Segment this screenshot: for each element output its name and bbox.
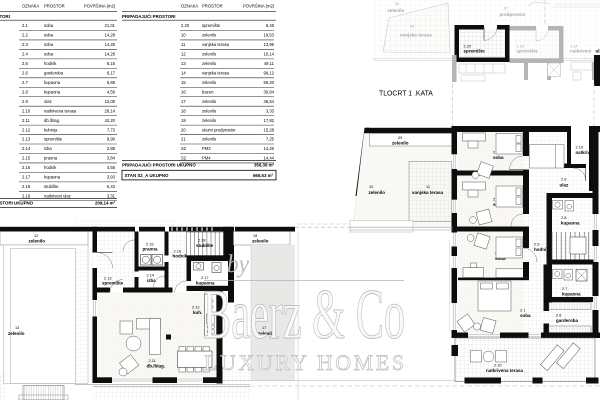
- svg-text:6,48: 6,48: [266, 23, 275, 28]
- svg-text:18: 18: [181, 108, 186, 113]
- svg-text:2.5: 2.5: [22, 61, 28, 66]
- svg-text:TLOCRT 1 .KATA: TLOCRT 1 .KATA: [379, 91, 433, 98]
- svg-text:20: 20: [181, 127, 186, 132]
- svg-text:36,54: 36,54: [264, 99, 275, 104]
- svg-text:vanjska terasa: vanjska terasa: [202, 42, 230, 47]
- svg-text:2.5: 2.5: [534, 242, 539, 247]
- svg-text:hodnik: hodnik: [173, 254, 188, 259]
- svg-text:18: 18: [253, 234, 257, 238]
- svg-text:STAN S2_A UKUPNO: STAN S2_A UKUPNO: [125, 173, 169, 178]
- svg-text:14,28: 14,28: [105, 33, 116, 38]
- svg-text:2.11: 2.11: [149, 358, 156, 363]
- svg-text:05: 05: [395, 2, 399, 6]
- svg-text:5,43: 5,43: [107, 184, 116, 189]
- svg-text:4,58: 4,58: [107, 89, 116, 94]
- svg-text:14,28: 14,28: [105, 52, 116, 57]
- svg-text:14,44: 14,44: [264, 156, 275, 161]
- svg-text:kuh.: kuh.: [193, 310, 202, 315]
- svg-text:by: by: [227, 251, 250, 278]
- svg-text:21: 21: [181, 137, 186, 142]
- svg-text:stubište: stubište: [196, 243, 214, 248]
- svg-text:15,28: 15,28: [264, 127, 275, 132]
- svg-text:spremište: spremište: [102, 281, 124, 286]
- svg-text:2.2: 2.2: [22, 33, 28, 38]
- svg-text:2.18: 2.18: [22, 184, 31, 189]
- svg-text:soba: soba: [44, 52, 54, 57]
- svg-text:praona: praona: [143, 247, 159, 252]
- svg-text:6,17: 6,17: [107, 71, 116, 76]
- svg-text:zelenilo: zelenilo: [252, 239, 269, 244]
- svg-text:PM3: PM3: [202, 146, 211, 151]
- svg-text:2.13: 2.13: [104, 275, 112, 280]
- svg-text:21,01: 21,01: [105, 23, 116, 28]
- svg-text:2.6: 2.6: [22, 71, 28, 76]
- svg-text:vanjska terasa: vanjska terasa: [412, 190, 444, 195]
- svg-text:13: 13: [181, 61, 186, 66]
- svg-text:7,73: 7,73: [107, 127, 116, 132]
- svg-text:2.19: 2.19: [22, 193, 31, 198]
- svg-text:28,14: 28,14: [105, 108, 116, 113]
- svg-text:garderoba: garderoba: [44, 71, 64, 76]
- svg-text:2.18: 2.18: [198, 238, 206, 243]
- svg-text:10,14: 10,14: [264, 52, 275, 57]
- svg-text:09: 09: [398, 136, 402, 140]
- svg-text:ulaz: ulaz: [560, 183, 570, 188]
- svg-text:10: 10: [181, 33, 186, 38]
- svg-text:OZNAKA: OZNAKA: [181, 4, 198, 9]
- svg-text:14,28: 14,28: [105, 42, 116, 47]
- svg-text:3,31: 3,31: [107, 193, 116, 198]
- svg-text:2.3: 2.3: [22, 42, 28, 47]
- svg-text:zelenilo: zelenilo: [202, 33, 217, 38]
- svg-text:2.7: 2.7: [22, 80, 28, 85]
- svg-text:zelenilo: zelenilo: [202, 52, 217, 57]
- svg-text:9,90: 9,90: [107, 137, 116, 142]
- svg-text:2.4: 2.4: [22, 52, 28, 57]
- svg-text:stubište: stubište: [44, 184, 59, 189]
- svg-text:59,20: 59,20: [264, 80, 275, 85]
- svg-text:db./blag.: db./blag.: [44, 118, 60, 123]
- svg-text:2.12: 2.12: [192, 305, 200, 310]
- svg-text:POVRŠINA (m2): POVRŠINA (m2): [243, 4, 275, 9]
- svg-text:bazen: bazen: [202, 89, 214, 94]
- svg-text:13: 13: [15, 325, 19, 330]
- svg-text:14: 14: [181, 71, 186, 76]
- svg-text:3,84: 3,84: [107, 156, 116, 161]
- svg-text:30,84: 30,84: [264, 89, 275, 94]
- svg-text:zelenilo: zelenilo: [202, 118, 217, 123]
- svg-text:ulaz: ulaz: [44, 99, 52, 104]
- svg-text:12: 12: [181, 52, 186, 57]
- svg-text:kupaona: kupaona: [44, 175, 61, 180]
- svg-text:2.20: 2.20: [181, 23, 190, 28]
- svg-text:7,25: 7,25: [266, 137, 275, 142]
- svg-text:POVRŠINA (m2): POVRŠINA (m2): [84, 4, 116, 9]
- svg-text:PRIPADAJUĆI PROSTORI UKUPNO: PRIPADAJUĆI PROSTORI UKUPNO: [122, 163, 196, 168]
- svg-text:8,16: 8,16: [107, 61, 116, 66]
- svg-text:2.16: 2.16: [174, 248, 182, 253]
- svg-text:soba: soba: [44, 33, 54, 38]
- svg-text:13,95: 13,95: [264, 42, 275, 47]
- svg-text:Baerz & Co: Baerz & Co: [203, 276, 405, 354]
- svg-text:vanjska terasa: vanjska terasa: [400, 33, 432, 38]
- svg-text:soba: soba: [493, 155, 504, 160]
- svg-text:17,82: 17,82: [264, 118, 275, 123]
- svg-text:2.17: 2.17: [22, 175, 31, 180]
- svg-text:565,53 m²: 565,53 m²: [253, 173, 274, 178]
- svg-text:hodnik: hodnik: [44, 165, 57, 170]
- svg-text:14,26: 14,26: [264, 146, 275, 151]
- svg-text:2.10: 2.10: [494, 363, 502, 368]
- svg-text:soba: soba: [520, 313, 531, 318]
- svg-text:spremište: spremište: [44, 137, 63, 142]
- svg-text:zelenilo: zelenilo: [202, 80, 217, 85]
- svg-text:zelenilo: zelenilo: [202, 108, 217, 113]
- svg-text:zelenilo: zelenilo: [202, 137, 217, 142]
- svg-text:zelenilo: zelenilo: [388, 8, 405, 13]
- svg-text:spremište: spremište: [202, 23, 221, 28]
- svg-text:2.13: 2.13: [22, 137, 31, 142]
- svg-text:2.15: 2.15: [22, 156, 31, 161]
- svg-text:2.16: 2.16: [22, 165, 31, 170]
- svg-text:kupaona: kupaona: [561, 220, 580, 225]
- svg-text:2.10: 2.10: [22, 108, 31, 113]
- svg-text:2.12: 2.12: [22, 127, 31, 132]
- svg-text:42,20: 42,20: [105, 118, 116, 123]
- svg-text:garderoba: garderoba: [556, 318, 579, 323]
- svg-text:spremište: spremište: [464, 49, 486, 54]
- svg-text:209,14 m²: 209,14 m²: [95, 201, 116, 206]
- svg-text:soba: soba: [44, 23, 54, 28]
- svg-text:2.11: 2.11: [22, 118, 31, 123]
- svg-text:11: 11: [426, 184, 430, 189]
- svg-text:zelenilo: zelenilo: [8, 331, 25, 336]
- svg-text:2.8: 2.8: [22, 89, 28, 94]
- svg-text:ulazni predprostor: ulazni predprostor: [202, 127, 236, 132]
- svg-text:PROSTOR: PROSTOR: [44, 4, 65, 9]
- svg-text:49,11: 49,11: [264, 61, 275, 66]
- svg-text:11: 11: [181, 42, 186, 47]
- svg-text:2.8: 2.8: [561, 215, 566, 220]
- svg-text:2.14: 2.14: [22, 146, 31, 151]
- svg-text:5,68: 5,68: [107, 80, 116, 85]
- svg-text:15: 15: [181, 80, 186, 85]
- svg-text:2.6: 2.6: [556, 313, 561, 318]
- svg-text:99,12: 99,12: [264, 71, 275, 76]
- svg-text:TORI: TORI: [0, 14, 10, 19]
- svg-text:natkriveni ulaz: natkriveni ulaz: [44, 193, 71, 198]
- svg-text:kuhinja: kuhinja: [44, 127, 58, 132]
- svg-text:izba: izba: [44, 146, 52, 151]
- svg-text:spremište: spremište: [517, 49, 539, 54]
- svg-text:PM4: PM4: [202, 156, 211, 161]
- svg-text:19: 19: [181, 118, 186, 123]
- svg-text:2.9: 2.9: [561, 177, 566, 182]
- svg-text:17: 17: [181, 99, 186, 104]
- svg-text:predprostor: predprostor: [500, 12, 526, 17]
- svg-text:zelenilo: zelenilo: [369, 190, 386, 195]
- svg-text:PROSTOR: PROSTOR: [202, 4, 223, 9]
- svg-text:S2: S2: [181, 146, 187, 151]
- svg-text:kupaona: kupaona: [562, 291, 581, 296]
- svg-text:kupaona: kupaona: [44, 80, 61, 85]
- svg-text:db./blag.: db./blag.: [147, 364, 166, 369]
- svg-text:praona: praona: [44, 156, 58, 161]
- svg-text:3,93: 3,93: [107, 175, 116, 180]
- svg-text:2.7: 2.7: [562, 286, 567, 291]
- svg-text:natkrivena terasa: natkrivena terasa: [44, 108, 77, 113]
- svg-text:PRIPADAJUĆI PROSTORI: PRIPADAJUĆI PROSTORI: [122, 14, 176, 19]
- svg-text:2.15: 2.15: [146, 241, 154, 246]
- svg-text:06: 06: [410, 25, 414, 29]
- svg-text:ul: ul: [596, 49, 600, 54]
- svg-text:soba: soba: [44, 42, 54, 47]
- svg-text:3,33: 3,33: [266, 108, 275, 113]
- svg-text:12,05: 12,05: [105, 99, 116, 104]
- svg-text:12: 12: [34, 234, 38, 238]
- svg-text:zelenilo: zelenilo: [392, 141, 409, 146]
- svg-text:natkrivena terasa: natkrivena terasa: [486, 368, 524, 373]
- svg-text:4,58: 4,58: [107, 165, 116, 170]
- svg-text:OZNAKA: OZNAKA: [22, 4, 39, 9]
- svg-text:natkriveni: natkriveni: [570, 49, 591, 54]
- svg-text:zelenilo: zelenilo: [202, 99, 217, 104]
- svg-text:2.1: 2.1: [520, 308, 525, 313]
- svg-text:zelenilo: zelenilo: [29, 239, 46, 244]
- svg-text:hodnik: hodnik: [44, 61, 57, 66]
- svg-text:2,88: 2,88: [107, 146, 116, 151]
- svg-text:kupaona: kupaona: [44, 89, 61, 94]
- svg-text:2.14: 2.14: [147, 273, 155, 278]
- svg-text:19,53: 19,53: [264, 33, 275, 38]
- svg-text:2.9: 2.9: [22, 99, 28, 104]
- svg-text:STORI UKUPNO: STORI UKUPNO: [0, 201, 34, 206]
- svg-text:2.1: 2.1: [22, 23, 28, 28]
- svg-text:07: 07: [504, 7, 508, 11]
- svg-text:356,39 m²: 356,39 m²: [254, 163, 275, 168]
- svg-text:16: 16: [181, 89, 186, 94]
- svg-text:S2: S2: [181, 156, 187, 161]
- svg-text:zelenilo: zelenilo: [202, 61, 217, 66]
- svg-text:vanjska terasa: vanjska terasa: [202, 71, 230, 76]
